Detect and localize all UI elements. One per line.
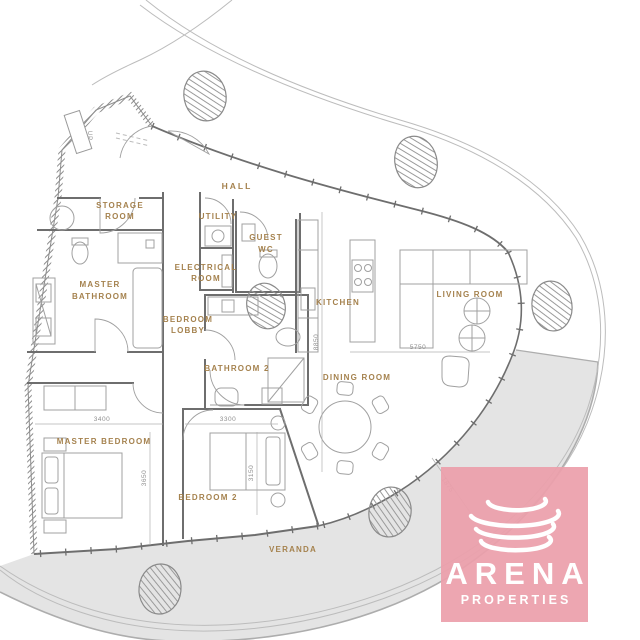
column-icon — [179, 67, 230, 125]
bathtub-icon — [133, 268, 162, 348]
pillow-icon — [45, 457, 58, 483]
sofa-icon — [400, 250, 527, 284]
entrance-wall — [58, 96, 152, 198]
hob-burner — [355, 279, 362, 286]
utility-fixtures — [205, 226, 231, 246]
interior-walls — [28, 193, 318, 545]
room-label-hall: HALL — [222, 181, 253, 191]
kitchen-fixtures — [298, 220, 375, 352]
dim-bedroom2-width: 3300 — [220, 416, 236, 423]
room-label-bedroom2: BEDROOM 2 — [178, 493, 237, 502]
master-bath-door-arc — [95, 319, 128, 352]
nightstand-icon — [271, 416, 285, 430]
lobby-walls — [163, 295, 205, 409]
kitchen-island — [350, 240, 375, 342]
doors — [95, 126, 268, 440]
nightstand-icon — [44, 520, 66, 533]
bedroom2-door-arc — [183, 410, 213, 440]
room-label-master-bath-2: BATHROOM — [72, 292, 128, 301]
watermark-tagline: PROPERTIES — [461, 593, 572, 607]
chair-icon — [337, 381, 354, 395]
dim-bedroom2-depth: 3150 — [248, 465, 255, 481]
floor-plan-svg: 3400 3650 3300 3150 5750 8850 1875 UP HA… — [0, 0, 640, 640]
column-icon — [529, 278, 576, 333]
toilet-icon — [259, 254, 277, 278]
armchair-icon — [442, 356, 469, 387]
column-icon — [389, 132, 442, 193]
dim-living-width: 5750 — [410, 344, 426, 351]
chair-icon — [371, 441, 390, 461]
dim-master-depth: 3650 — [141, 470, 148, 486]
master-bedroom-furniture — [42, 386, 122, 533]
room-label-lobby-2: LOBBY — [171, 326, 205, 335]
sink-icon — [222, 300, 234, 312]
room-label-lobby-1: BEDROOM — [163, 315, 213, 324]
lobby-door-arc — [205, 330, 235, 360]
chair-icon — [336, 460, 353, 474]
dining-chairs — [300, 381, 390, 474]
chair-icon — [371, 395, 390, 415]
dining-table-icon — [319, 401, 371, 453]
entry-door-arc-2 — [120, 126, 152, 158]
room-label-kitchen: KITCHEN — [316, 298, 360, 307]
dim-interior-depth: 8850 — [313, 334, 320, 350]
washer-drum — [212, 230, 224, 242]
room-label-guest-wc-2: WC — [258, 245, 274, 254]
room-label-electrical-1: ELECTRICAL — [175, 263, 238, 272]
watermark: ARENA PROPERTIES — [441, 467, 591, 622]
room-label-veranda: VERANDA — [269, 545, 317, 554]
bed-icon — [42, 453, 122, 518]
sofa-icon — [400, 284, 433, 348]
chair-icon — [300, 441, 319, 461]
stairs-up-label: UP — [86, 131, 92, 141]
washer-icon — [205, 226, 231, 246]
pillow-icon — [266, 437, 280, 485]
master-bedroom-walls — [28, 383, 163, 545]
hob-burner — [365, 279, 372, 286]
dining-room-furniture — [300, 381, 390, 474]
room-label-storage-2: ROOM — [105, 212, 135, 221]
master-bedroom-door-arc — [133, 383, 163, 413]
shower-detail — [268, 358, 304, 402]
hob-burner — [365, 265, 372, 272]
room-label-master-bath-1: MASTER — [80, 280, 121, 289]
entry-door-arc — [168, 131, 209, 154]
column-icon — [242, 279, 291, 333]
room-label-living-room: LIVING ROOM — [437, 290, 504, 299]
hob-burner — [355, 265, 362, 272]
room-label-storage-1: STORAGE — [96, 201, 144, 210]
room-label-utility: UTILITY — [199, 212, 238, 221]
room-label-master-bedroom: MASTER BEDROOM — [57, 437, 152, 446]
room-label-bathroom2: BATHROOM 2 — [204, 364, 269, 373]
shower-tray — [118, 233, 162, 263]
room-label-electrical-2: ROOM — [191, 274, 221, 283]
nightstand-icon — [271, 493, 285, 507]
room-label-dining-room: DINING ROOM — [323, 373, 391, 382]
pillow-icon — [45, 488, 58, 514]
dim-master-width: 3400 — [94, 416, 110, 423]
shower-drain — [146, 240, 154, 248]
floor-plan-canvas: 3400 3650 3300 3150 5750 8850 1875 UP HA… — [0, 0, 640, 640]
watermark-brand: ARENA — [445, 556, 590, 591]
room-label-guest-wc-1: GUEST — [249, 233, 283, 242]
